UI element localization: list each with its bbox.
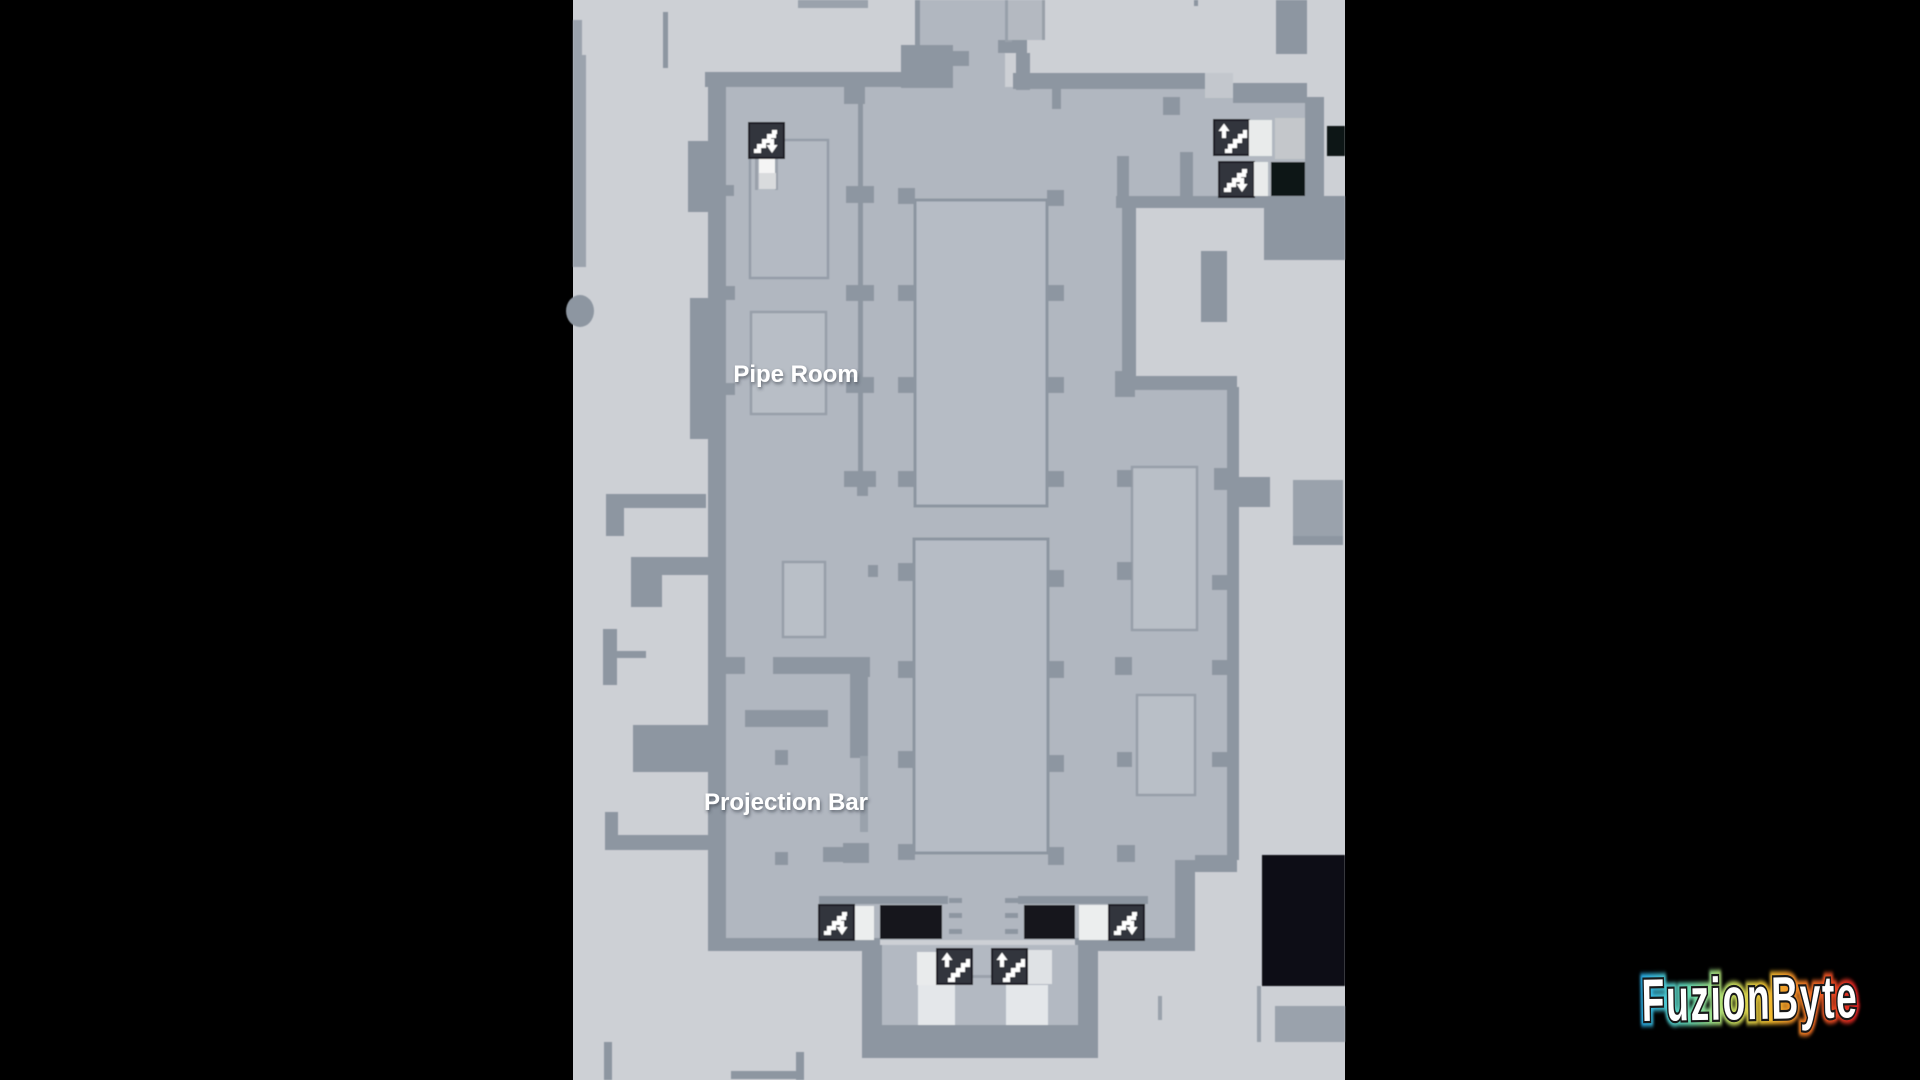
svg-text:Projection Bar: Projection Bar (704, 789, 868, 816)
svg-text:FuzionByte: FuzionByte (1641, 963, 1857, 1034)
svg-text:Pipe Room: Pipe Room (733, 361, 858, 388)
